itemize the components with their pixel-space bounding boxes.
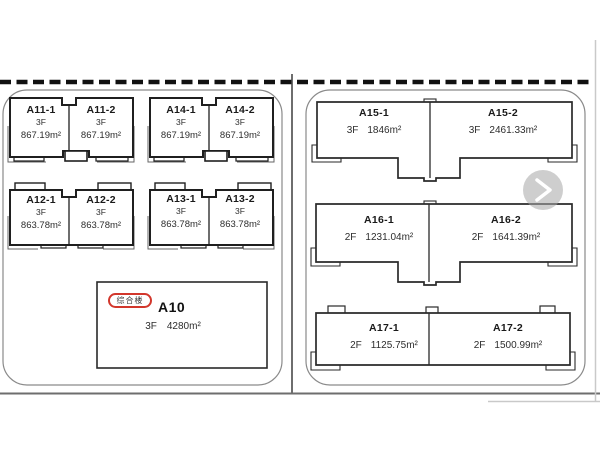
- unit-area: 863.78m²: [161, 220, 201, 230]
- a14-stair-core: [205, 151, 227, 161]
- unit-floor: 3F: [347, 125, 359, 136]
- unit-area: 867.19m²: [161, 131, 201, 141]
- unit-info: 2F 1231.04m²: [345, 232, 413, 243]
- building-a16-shape[interactable]: [311, 201, 577, 285]
- unit-floor: 2F: [350, 340, 362, 351]
- a10-category-badge: 综合楼: [108, 293, 152, 308]
- unit-floor: 3F: [469, 125, 481, 136]
- unit-name: A16-1: [364, 215, 394, 226]
- unit-a14-2-label[interactable]: A14-2 3F 867.19m²: [204, 105, 276, 141]
- site-plan-viewer: A11-1 3F 867.19m² A11-2 3F 867.19m² A14-…: [0, 0, 600, 450]
- unit-name: A12-1: [26, 195, 56, 206]
- unit-floor: 3F: [145, 321, 157, 332]
- unit-info: 2F 1125.75m²: [350, 340, 418, 351]
- unit-floor: 3F: [96, 208, 106, 217]
- unit-info: 3F 2461.33m²: [469, 125, 537, 136]
- unit-a16-1-label[interactable]: A16-1 2F 1231.04m²: [309, 215, 449, 243]
- unit-floor: 3F: [36, 118, 46, 127]
- unit-area: 4280m²: [167, 321, 201, 332]
- unit-area: 863.78m²: [220, 220, 260, 230]
- unit-info: 3F 1846m²: [347, 125, 402, 136]
- unit-floor: 3F: [96, 118, 106, 127]
- unit-a13-2-label[interactable]: A13-2 3F 863.78m²: [204, 194, 276, 230]
- unit-name: A14-2: [225, 105, 255, 116]
- unit-name: A17-2: [493, 323, 523, 334]
- unit-name: A11-1: [26, 105, 55, 116]
- unit-area: 867.19m²: [81, 131, 121, 141]
- unit-name: A15-2: [488, 108, 518, 119]
- next-button-circle: [523, 170, 563, 210]
- unit-a16-2-label[interactable]: A16-2 2F 1641.39m²: [436, 215, 576, 243]
- unit-area: 1125.75m²: [371, 340, 418, 351]
- unit-name: A13-2: [225, 194, 255, 205]
- unit-floor: 2F: [472, 232, 484, 243]
- a13-roof-tab: [155, 183, 185, 190]
- unit-a15-2-label[interactable]: A15-2 3F 2461.33m²: [433, 108, 573, 136]
- a13-roof-tab: [238, 183, 271, 190]
- unit-area: 867.19m²: [21, 131, 61, 141]
- unit-area: 867.19m²: [220, 131, 260, 141]
- unit-info: 2F 1641.39m²: [472, 232, 540, 243]
- unit-a10-info: 3F 4280m²: [132, 321, 214, 332]
- unit-a15-1-label[interactable]: A15-1 3F 1846m²: [304, 108, 444, 136]
- unit-name: A11-2: [86, 105, 115, 116]
- unit-area: 1641.39m²: [492, 232, 540, 243]
- unit-name: A12-2: [86, 195, 116, 206]
- unit-area: 2461.33m²: [489, 125, 537, 136]
- unit-floor: 3F: [235, 118, 245, 127]
- unit-a10-name[interactable]: A10: [158, 299, 218, 315]
- unit-floor: 3F: [235, 207, 245, 216]
- unit-floor: 2F: [345, 232, 357, 243]
- unit-floor: 3F: [176, 118, 186, 127]
- unit-name: A17-1: [369, 323, 399, 334]
- unit-area: 1231.04m²: [365, 232, 413, 243]
- unit-floor: 3F: [36, 208, 46, 217]
- unit-a17-2-label[interactable]: A17-2 2F 1500.99m²: [438, 323, 578, 351]
- unit-a17-1-label[interactable]: A17-1 2F 1125.75m²: [314, 323, 454, 351]
- unit-floor: 2F: [474, 340, 486, 351]
- unit-info: 2F 1500.99m²: [474, 340, 542, 351]
- unit-name: A16-2: [491, 215, 521, 226]
- unit-name: A14-1: [166, 105, 196, 116]
- unit-area: 1500.99m²: [494, 340, 542, 351]
- a12-roof-tab: [15, 183, 45, 190]
- a11-stair-core: [65, 151, 87, 161]
- unit-a11-2-label[interactable]: A11-2 3F 867.19m²: [65, 105, 137, 141]
- unit-a12-2-label[interactable]: A12-2 3F 863.78m²: [65, 195, 137, 231]
- a12-roof-tab: [98, 183, 131, 190]
- unit-floor: 3F: [176, 207, 186, 216]
- unit-name: A13-1: [166, 194, 196, 205]
- unit-area: 863.78m²: [81, 221, 121, 231]
- next-button[interactable]: [523, 170, 563, 210]
- unit-name: A15-1: [359, 108, 389, 119]
- unit-area: 863.78m²: [21, 221, 61, 231]
- unit-area: 1846m²: [367, 125, 401, 136]
